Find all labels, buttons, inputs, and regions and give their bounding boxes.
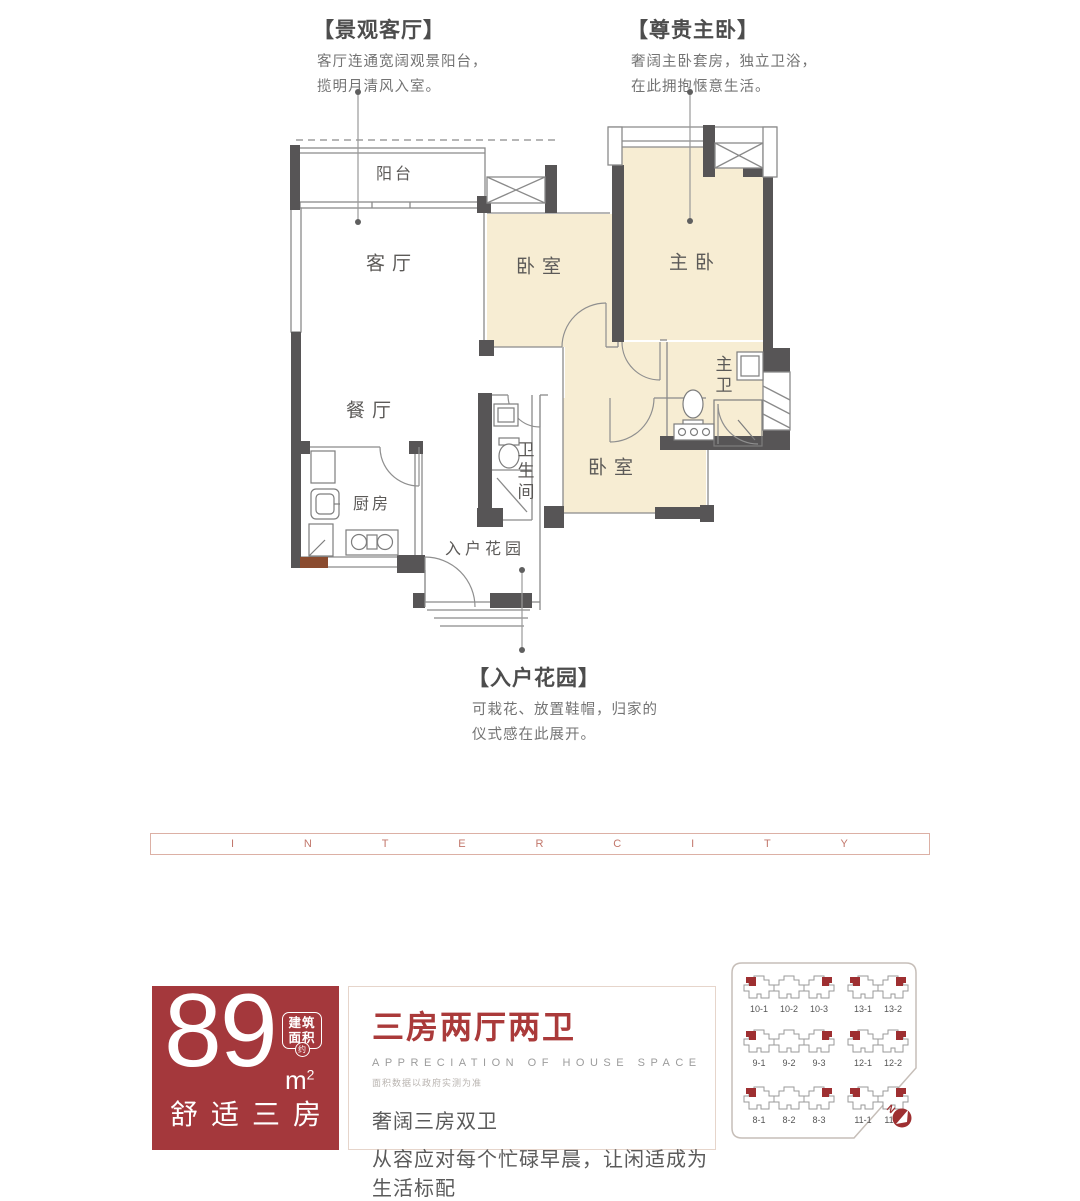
banner-letter: E — [458, 838, 466, 850]
callout-entry-garden: 【入户花园】 可栽花、放置鞋帽，归家的 仪式感在此展开。 — [468, 662, 658, 749]
callout-master-line1: 奢阔主卧套房，独立卫浴， — [631, 50, 817, 75]
unit-label: 10-3 — [810, 1004, 828, 1014]
banner-letter: C — [613, 838, 622, 850]
unit-label: 9-2 — [782, 1058, 795, 1068]
info-card: 三房两厅两卫 APPRECIATION OF HOUSE SPACE 面积数据以… — [348, 986, 716, 1150]
banner-letter: I — [231, 838, 235, 850]
info-line1: 奢阔三房双卫 — [372, 1105, 715, 1134]
unit-label: 12-2 — [884, 1058, 902, 1068]
floor-plan — [260, 75, 820, 665]
unit-label: 13-2 — [884, 1004, 902, 1014]
info-subtitle-en: APPRECIATION OF HOUSE SPACE — [372, 1057, 715, 1069]
room-label-balcony: 阳台 — [376, 160, 414, 184]
room-label-bedroom3: 卧室 — [588, 453, 640, 480]
unit-label: 8-2 — [782, 1115, 795, 1125]
callout-garden-title: 【入户花园】 — [468, 662, 658, 692]
unit-label: 9-3 — [812, 1058, 825, 1068]
area-subtitle: 舒适三房 — [152, 1093, 339, 1133]
unit-label: 11-1 — [854, 1115, 871, 1125]
banner-letter: T — [382, 838, 390, 850]
seal-line1: 建筑 — [285, 1016, 319, 1031]
unit-label: 10-1 — [750, 1004, 768, 1014]
callout-garden-line1: 可栽花、放置鞋帽，归家的 — [472, 698, 658, 723]
banner-letter: R — [535, 838, 544, 850]
room-label-living: 客厅 — [366, 249, 418, 276]
area-unit: m2 — [285, 1065, 322, 1096]
callout-garden-line2: 仪式感在此展开。 — [472, 723, 658, 748]
room-label-dining: 餐厅 — [346, 396, 398, 423]
unit-label: 10-2 — [780, 1004, 798, 1014]
floorplan-poster: { "callouts": { "living": {"title": "【景观… — [0, 0, 1080, 1152]
unit-label: 8-3 — [812, 1115, 825, 1125]
brand-banner: I N T E R C I T Y — [150, 833, 930, 855]
room-label-entry-garden: 入户花园 — [445, 535, 525, 559]
room-label-master-bath: 主卫 — [710, 355, 735, 397]
callout-living-line1: 客厅连通宽阔观景阳台， — [317, 50, 488, 75]
banner-letter: N — [304, 838, 313, 850]
room-label-bedroom2: 卧室 — [516, 252, 568, 279]
unit-label: 13-1 — [854, 1004, 872, 1014]
room-label-bathroom: 卫生间 — [512, 441, 537, 504]
site-plan: 10-1 10-2 10-3 13-1 13-2 9-1 9-2 9-3 12-… — [725, 958, 930, 1148]
unit-label: 9-1 — [752, 1058, 765, 1068]
unit-label: 8-1 — [752, 1115, 765, 1125]
area-seal: 建筑 面积 约 m2 — [282, 1012, 322, 1096]
info-note: 面积数据以政府实测为准 — [372, 1076, 715, 1089]
entry-threshold — [300, 557, 328, 568]
banner-letter: T — [764, 838, 772, 850]
unit-label: 12-1 — [854, 1058, 872, 1068]
room-label-kitchen: 厨房 — [353, 490, 391, 514]
area-number: 89 — [164, 986, 276, 1091]
callout-living-title: 【景观客厅】 — [313, 14, 488, 44]
banner-letter: Y — [841, 838, 849, 850]
room-label-master-bedroom: 主卧 — [669, 248, 721, 275]
info-title: 三房两厅两卫 — [372, 1002, 715, 1048]
banner-letter: I — [691, 838, 695, 850]
area-card: 89 建筑 面积 约 m2 舒适三房 — [152, 986, 339, 1150]
callout-master-title: 【尊贵主卧】 — [627, 14, 817, 44]
